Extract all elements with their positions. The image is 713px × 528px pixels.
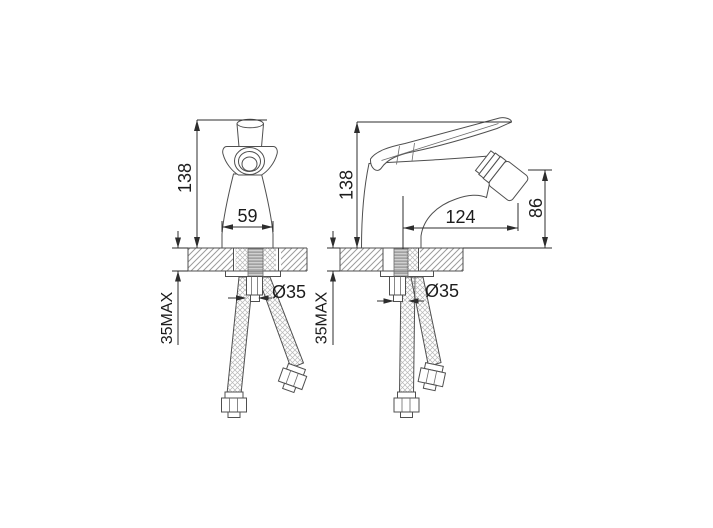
side-hose-straight-fitting	[394, 392, 419, 418]
side-dim-hole-label: Ø35	[425, 281, 459, 301]
front-hole-hose-section-right	[264, 249, 277, 271]
front-dim-deck-thickness: 35MAX	[159, 231, 188, 345]
mounting-nut-body	[390, 277, 406, 296]
front-threaded-stud	[248, 249, 263, 277]
side-deck-hatch-right	[420, 248, 463, 271]
front-lever-cylinder	[237, 119, 264, 147]
side-deck-hatch-left	[340, 248, 383, 271]
fitting-collar	[398, 392, 416, 398]
side-lever-inner-line	[382, 124, 499, 161]
front-dim-hole-label: Ø35	[272, 282, 306, 302]
faucet-technical-drawing: 138 59 Ø35 35MAX	[0, 0, 713, 528]
side-faucet-body	[362, 156, 496, 249]
front-mounting-deck	[188, 248, 307, 271]
fitting-collar	[225, 392, 243, 398]
front-dim-height-label: 138	[175, 163, 195, 193]
side-dim-height-label: 138	[337, 170, 357, 200]
drawing-page: 138 59 Ø35 35MAX	[0, 0, 713, 528]
front-hole-hose-section-left	[236, 249, 248, 271]
mounting-nut-collar	[251, 295, 260, 302]
fitting-stub	[228, 412, 240, 418]
fitting-nut	[222, 398, 247, 412]
front-deck-hatch-right	[281, 248, 307, 271]
front-dim-deck-thickness-label: 35MAX	[159, 291, 176, 344]
side-view: 138 124 86 Ø35 35MAX	[314, 118, 553, 418]
front-deck-hatch-left	[188, 248, 233, 271]
front-hose-straight-fitting	[222, 392, 247, 418]
side-hose-angled-fitting	[417, 362, 447, 392]
front-view: 138 59 Ø35 35MAX	[159, 119, 309, 417]
side-dim-deck-thickness-arrows	[330, 238, 336, 282]
front-dim-base-width-label: 59	[237, 206, 257, 226]
front-hose-angled-fitting	[277, 362, 309, 395]
fitting-nut	[394, 398, 419, 412]
mounting-nut-body	[247, 277, 263, 296]
front-hub-knob	[242, 157, 257, 171]
fitting-stub	[401, 412, 413, 418]
side-dim-spout-height-label: 86	[526, 198, 546, 218]
side-threaded-stud	[394, 249, 408, 277]
side-dim-deck-thickness: 35MAX	[314, 231, 341, 345]
front-dim-deck-thickness-arrows	[175, 238, 181, 282]
side-dim-reach-label: 124	[445, 207, 475, 227]
side-dim-deck-thickness-label: 35MAX	[314, 291, 331, 344]
mounting-nut-collar	[394, 295, 403, 302]
